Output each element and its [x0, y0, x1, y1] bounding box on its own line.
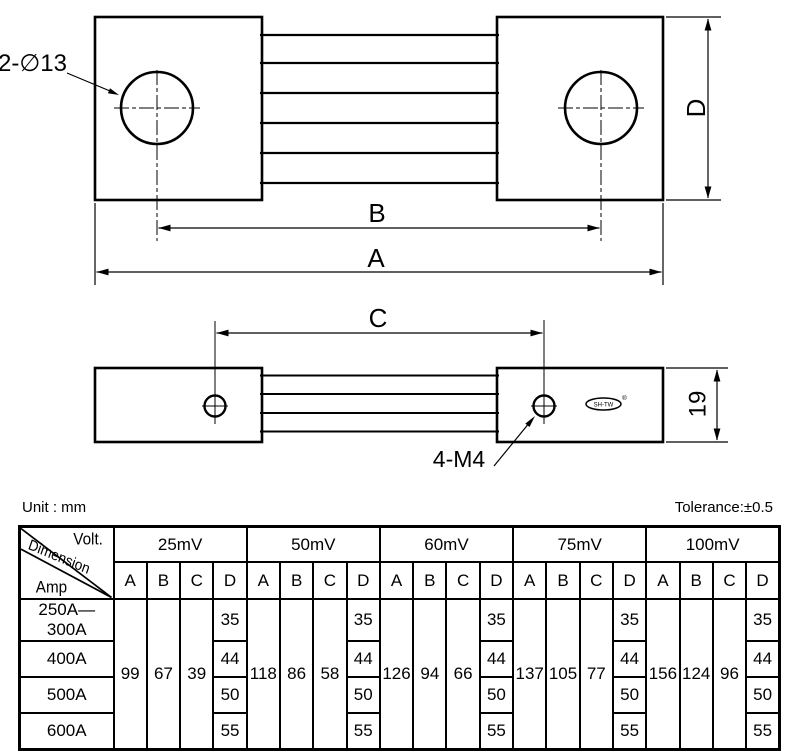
value-cell-d: 35 [347, 599, 380, 641]
value-cell-a: 118 [247, 599, 280, 750]
top-hole-callout-label: 2-∅13 [0, 50, 67, 77]
value-cell-c: 39 [180, 599, 213, 750]
voltage-group-header: 50mV [247, 527, 380, 563]
voltage-group-header: 60mV [380, 527, 513, 563]
value-cell-d: 35 [480, 599, 513, 641]
value-cell-a: 137 [513, 599, 546, 750]
dim-d-label: D [681, 99, 711, 118]
dim-col-header: A [513, 562, 546, 599]
side-view-left-terminal [95, 368, 262, 442]
value-cell-d: 55 [480, 713, 513, 750]
amp-row-header: 250A—300A [20, 599, 114, 641]
screw-hole-center-lines [202, 320, 557, 424]
voltage-group-header: 25mV [114, 527, 247, 563]
tolerance-note: Tolerance:±0.5 [675, 499, 773, 516]
amp-row-header: 600A [20, 713, 114, 750]
value-cell-c: 58 [313, 599, 346, 750]
value-cell-d: 50 [480, 677, 513, 713]
value-cell-d: 44 [746, 641, 779, 677]
value-cell-a: 99 [114, 599, 147, 750]
corner-cell: Volt. Dimension Amp [20, 527, 114, 600]
dim-col-header: A [380, 562, 413, 599]
dim-col-header: D [746, 562, 779, 599]
side-view-right-terminal [497, 368, 663, 442]
leader-lines [67, 73, 530, 466]
value-cell-d: 50 [613, 677, 646, 713]
top-hole-leader [67, 73, 110, 91]
voltage-group-header: 75mV [513, 527, 646, 563]
value-cell-d: 44 [347, 641, 380, 677]
value-cell-d: 55 [613, 713, 646, 750]
value-cell-a: 126 [380, 599, 413, 750]
value-cell-d: 35 [613, 599, 646, 641]
side-hole-callout-label: 4-M4 [433, 446, 486, 472]
side-view [95, 320, 663, 442]
value-cell-b: 67 [147, 599, 180, 750]
value-cell-b: 124 [680, 599, 713, 750]
dim-col-header: C [180, 562, 213, 599]
amp-row-header: 500A [20, 677, 114, 713]
value-cell-d: 55 [746, 713, 779, 750]
dim-col-header: A [247, 562, 280, 599]
value-cell-a: 156 [646, 599, 679, 750]
value-cell-c: 96 [713, 599, 746, 750]
dim-col-header: B [680, 562, 713, 599]
value-cell-d: 35 [746, 599, 779, 641]
value-cell-d: 50 [347, 677, 380, 713]
value-cell-d: 44 [213, 641, 246, 677]
value-cell-c: 66 [446, 599, 479, 750]
value-cell-d: 44 [613, 641, 646, 677]
dim-col-header: D [613, 562, 646, 599]
dim-col-header: A [646, 562, 679, 599]
value-cell-d: 50 [746, 677, 779, 713]
shunt-datasheet-page: 2-∅13 B A D C 19 4-M4 SH-TW ® Unit : mm … [0, 0, 800, 753]
resistance-strips-top [260, 35, 499, 183]
dim-19-label: 19 [685, 391, 712, 418]
value-cell-d: 50 [213, 677, 246, 713]
dim-col-header: C [580, 562, 613, 599]
registered-trademark-icon: ® [622, 394, 627, 402]
dim-col-header: B [546, 562, 579, 599]
dim-col-header: D [213, 562, 246, 599]
value-cell-b: 94 [413, 599, 446, 750]
corner-volt-label: Volt. [73, 531, 103, 549]
dim-b-label: B [368, 198, 385, 228]
dim-col-header: B [280, 562, 313, 599]
voltage-group-header: 100mV [646, 527, 779, 563]
value-cell-d: 55 [347, 713, 380, 750]
dimension-table: Volt. Dimension Amp 25mV 50mV 60mV 75mV … [18, 525, 781, 751]
brand-logo-text: SH-TW [594, 403, 614, 409]
dim-col-header: D [480, 562, 513, 599]
corner-amp-label: Amp [36, 579, 67, 597]
resistance-strips-side [260, 376, 499, 432]
dim-c-label: C [369, 303, 388, 333]
value-cell-d: 44 [480, 641, 513, 677]
dim-col-header: D [347, 562, 380, 599]
corner-diagonal: Volt. Dimension Amp [21, 528, 113, 598]
side-hole-leader [494, 422, 530, 466]
dim-col-header: C [713, 562, 746, 599]
value-cell-d: 35 [213, 599, 246, 641]
dim-col-header: B [147, 562, 180, 599]
value-cell-b: 86 [280, 599, 313, 750]
value-cell-d: 55 [213, 713, 246, 750]
technical-drawing: 2-∅13 B A D C 19 4-M4 SH-TW ® [0, 0, 800, 500]
dim-col-header: C [313, 562, 346, 599]
dim-a-label: A [367, 243, 385, 273]
unit-note: Unit : mm [22, 499, 86, 516]
dim-col-header: B [413, 562, 446, 599]
amp-row-header: 400A [20, 641, 114, 677]
dim-col-header: C [446, 562, 479, 599]
value-cell-b: 105 [546, 599, 579, 750]
value-cell-c: 77 [580, 599, 613, 750]
dim-col-header: A [114, 562, 147, 599]
